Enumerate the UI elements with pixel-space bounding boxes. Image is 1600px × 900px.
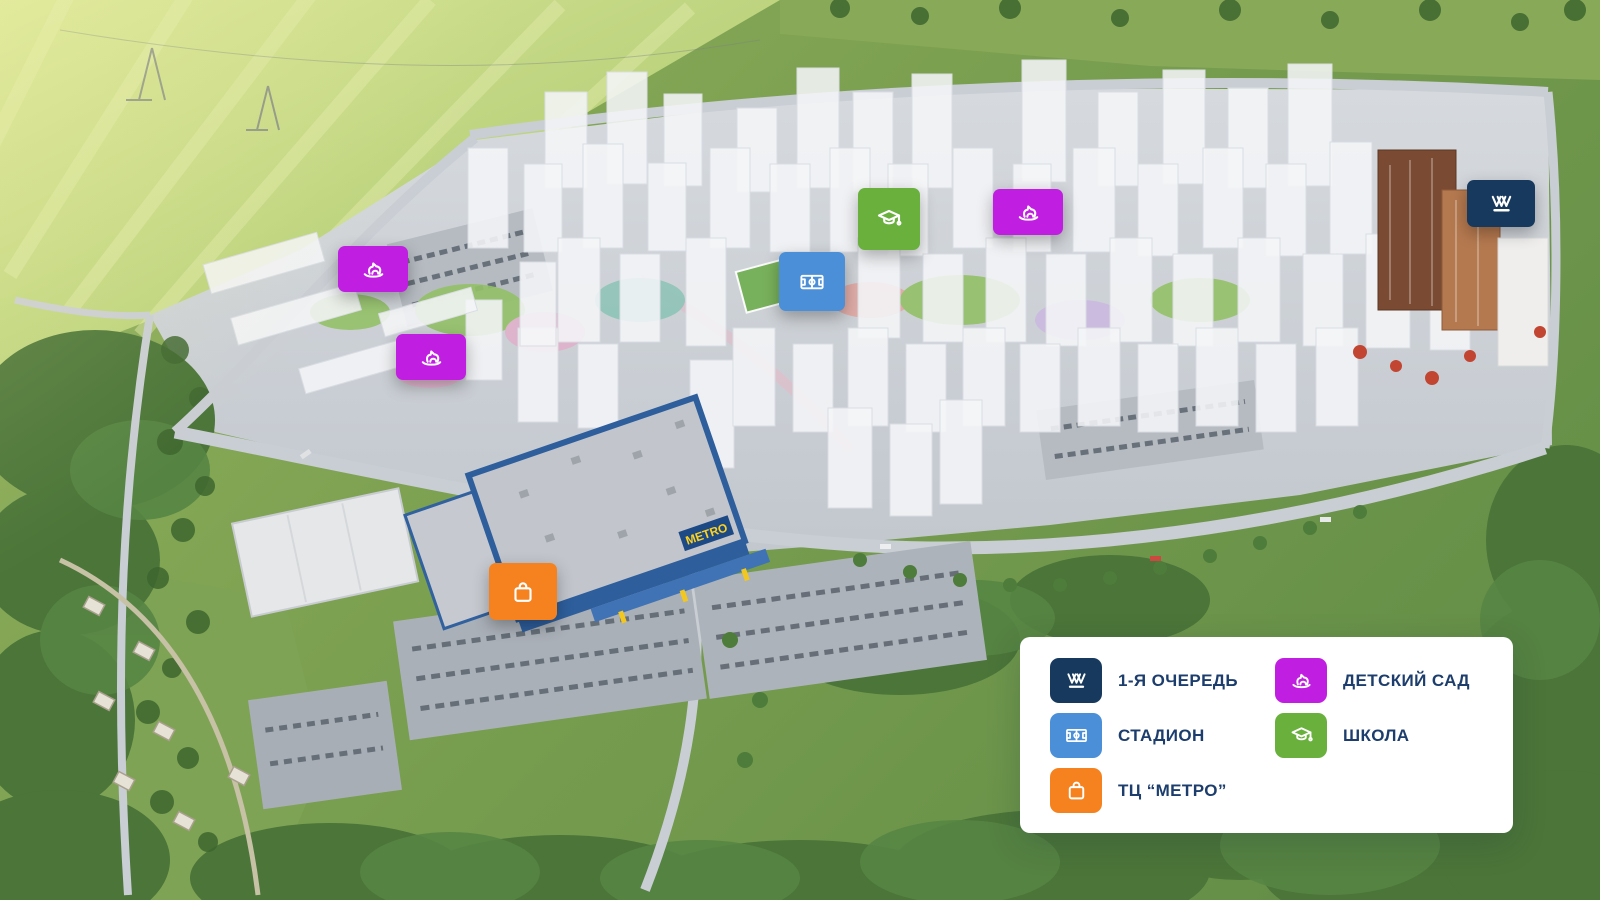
legend-item-metro-mall: ТЦ “МЕТРО” [1050, 768, 1227, 813]
vvv-logo-icon [1487, 189, 1516, 218]
marker-kindergarten-3[interactable] [993, 189, 1063, 235]
marker-metro-mall[interactable] [489, 563, 557, 620]
rocking-horse-icon [359, 255, 388, 284]
legend-item-first-phase: 1-Я ОЧЕРЕДЬ [1050, 658, 1238, 703]
legend-item-kindergarten: ДЕТСКИЙ САД [1275, 658, 1470, 703]
legend-label: ШКОЛА [1343, 726, 1409, 746]
marker-school[interactable] [858, 188, 920, 250]
marker-kindergarten-2[interactable] [396, 334, 466, 380]
legend-label: ТЦ “МЕТРО” [1118, 781, 1227, 801]
rocking-horse-icon [1014, 198, 1043, 227]
legend-label: 1-Я ОЧЕРЕДЬ [1118, 671, 1238, 691]
stadium-icon [1050, 713, 1102, 758]
graduation-cap-icon [874, 204, 904, 234]
legend-item-stadium: СТАДИОН [1050, 713, 1205, 758]
shopping-bag-icon [508, 577, 538, 607]
stadium-icon [797, 267, 827, 297]
map-legend-panel: 1-Я ОЧЕРЕДЬ СТАДИОН ТЦ “МЕТРО” [1020, 637, 1513, 833]
marker-kindergarten-1[interactable] [338, 246, 408, 292]
marker-first-phase[interactable] [1467, 180, 1535, 227]
graduation-cap-icon [1275, 713, 1327, 758]
marker-stadium[interactable] [779, 252, 845, 311]
shopping-bag-icon [1050, 768, 1102, 813]
legend-item-school: ШКОЛА [1275, 713, 1409, 758]
rocking-horse-icon [1275, 658, 1327, 703]
legend-label: СТАДИОН [1118, 726, 1205, 746]
rocking-horse-icon [417, 343, 446, 372]
masterplan-view: METRO [0, 0, 1600, 900]
vvv-logo-icon [1050, 658, 1102, 703]
legend-label: ДЕТСКИЙ САД [1343, 671, 1470, 691]
field-north [780, 0, 1600, 80]
